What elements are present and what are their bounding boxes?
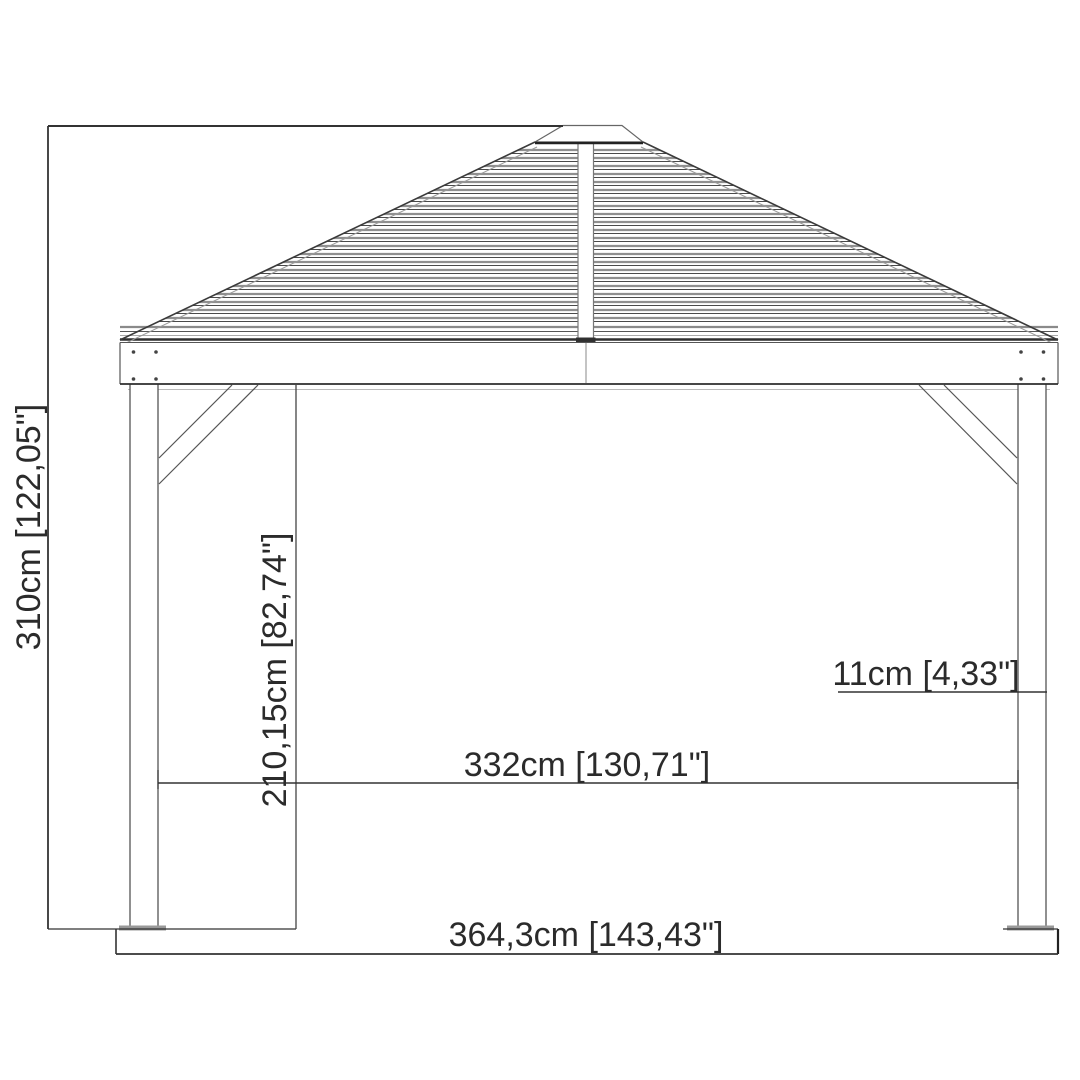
- gazebo-dimension-drawing: 310cm [122,05"] 210,15cm [82,74"] 332cm …: [0, 0, 1080, 1080]
- dim-total-width-label: 364,3cm [143,43"]: [449, 916, 724, 954]
- dim-clear-height-label: 210,15cm [82,74"]: [256, 533, 294, 808]
- dimension-lines: [48, 126, 1058, 954]
- dimension-labels: 310cm [122,05"] 210,15cm [82,74"] 332cm …: [10, 404, 1020, 954]
- right-knee-brace: [919, 385, 1017, 484]
- left-knee-brace: [159, 385, 258, 484]
- right-post: [1018, 385, 1046, 927]
- dim-inner-width-label: 332cm [130,71"]: [464, 746, 710, 784]
- roof-ridge-strip: [578, 142, 594, 338]
- roof: [120, 126, 1058, 344]
- roof-peak-cap: [535, 126, 643, 144]
- dim-post-width-label: 11cm [4,33"]: [832, 655, 1019, 693]
- left-post: [130, 385, 158, 927]
- drawing-svg: 310cm [122,05"] 210,15cm [82,74"] 332cm …: [0, 0, 1080, 1080]
- dim-total-height-label: 310cm [122,05"]: [10, 404, 48, 650]
- fascia-beam: [120, 343, 1058, 390]
